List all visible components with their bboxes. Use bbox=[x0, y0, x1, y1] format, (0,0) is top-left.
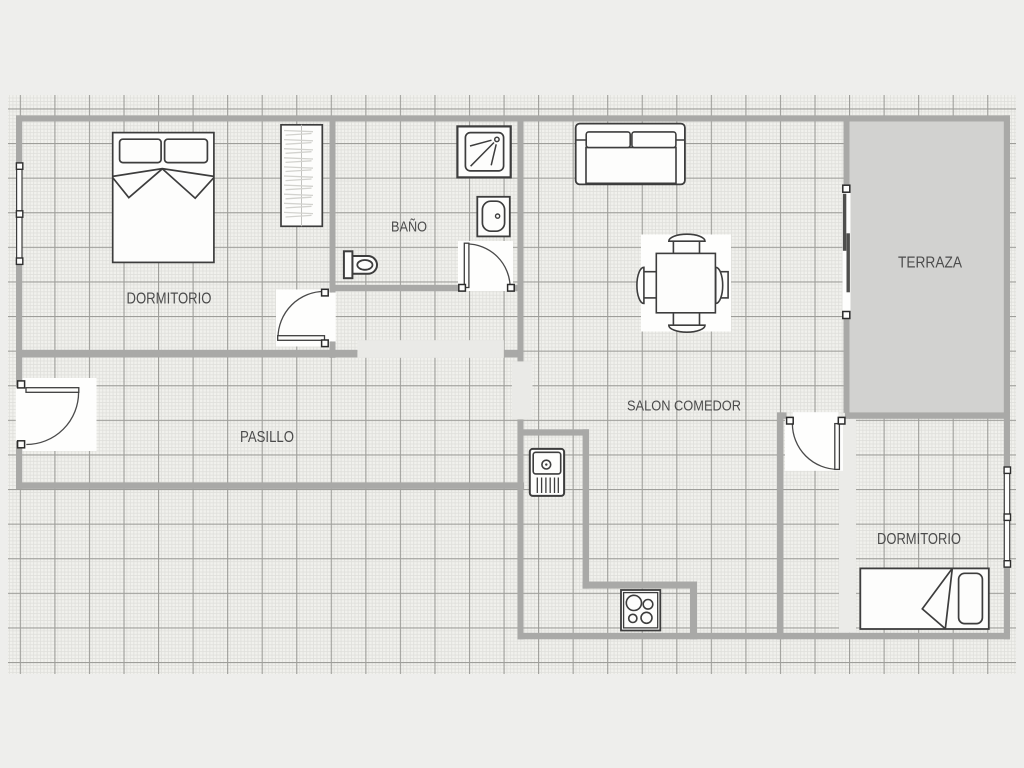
svg-text:BAÑO: BAÑO bbox=[391, 219, 427, 236]
svg-text:PASILLO: PASILLO bbox=[240, 429, 294, 446]
svg-text:SALON COMEDOR: SALON COMEDOR bbox=[627, 399, 741, 415]
svg-text:DORMITORIO: DORMITORIO bbox=[127, 290, 212, 307]
svg-text:TERRAZA: TERRAZA bbox=[898, 255, 963, 272]
svg-text:DORMITORIO: DORMITORIO bbox=[877, 531, 961, 548]
